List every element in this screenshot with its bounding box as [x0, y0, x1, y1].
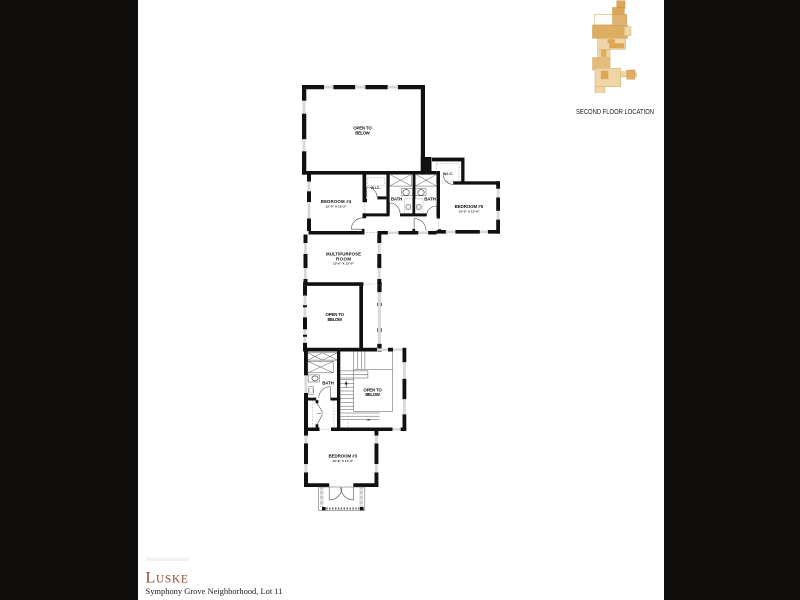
svg-text:BATH: BATH	[424, 196, 436, 201]
svg-text:BELOW: BELOW	[365, 392, 380, 397]
svg-text:W.I.C.: W.I.C.	[443, 172, 453, 176]
svg-text:UP: UP	[367, 418, 371, 422]
svg-text:12'-0" X 15'-2": 12'-0" X 15'-2"	[326, 205, 348, 209]
svg-text:14'-0" X 12'-6": 14'-0" X 12'-6"	[458, 210, 480, 214]
svg-text:SECOND FLOOR LOCATION: SECOND FLOOR LOCATION	[576, 109, 654, 116]
svg-text:BATH: BATH	[391, 196, 403, 201]
svg-text:13'-0" X 12'-0": 13'-0" X 12'-0"	[333, 262, 355, 266]
svg-text:BEDROOM #5: BEDROOM #5	[455, 204, 484, 209]
svg-text:BELOW: BELOW	[355, 130, 370, 135]
svg-text:BEDROOM #4: BEDROOM #4	[321, 199, 352, 204]
svg-text:BELOW: BELOW	[328, 317, 343, 322]
svg-text:13'-8" X 17'-0": 13'-8" X 17'-0"	[332, 459, 354, 463]
svg-text:Symphony Grove Neighborhood, L: Symphony Grove Neighborhood, Lot 11	[146, 587, 283, 596]
svg-text:BATH: BATH	[322, 381, 334, 386]
svg-text:BEDROOM #3: BEDROOM #3	[329, 453, 358, 458]
